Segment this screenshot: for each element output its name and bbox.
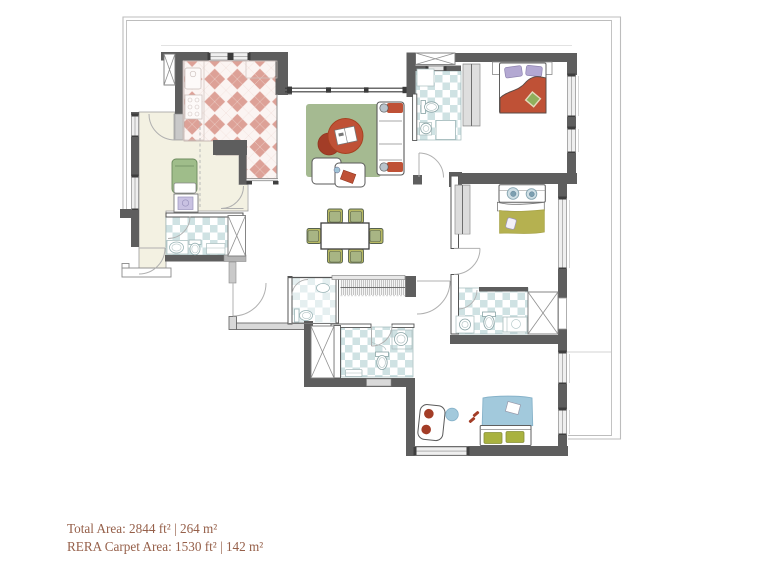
svg-text:Total Area: 2844 ft² | 264 m²: Total Area: 2844 ft² | 264 m² [67, 521, 217, 536]
svg-text:RERA Carpet Area: 1530 ft² | 1: RERA Carpet Area: 1530 ft² | 142 m² [67, 539, 263, 554]
